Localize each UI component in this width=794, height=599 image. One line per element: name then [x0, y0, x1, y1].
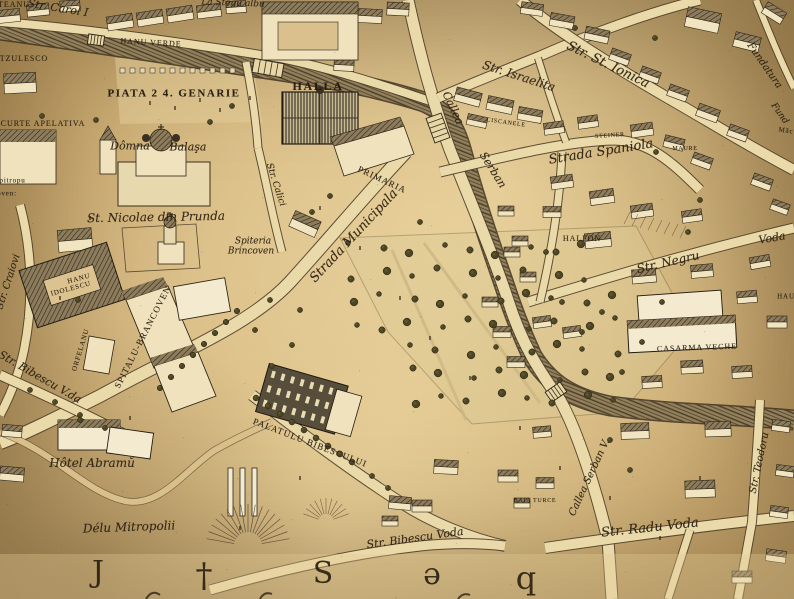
map-label-balaşa: Balaşa — [170, 142, 207, 153]
map-label-fundatura: Fundatura — [745, 41, 784, 90]
map-label-primaria: PRIMARIA — [356, 165, 408, 195]
map-label-callea-serban-v-: Callea Serban V. — [568, 438, 612, 518]
map-label-callea: Callea — [441, 90, 466, 126]
historical-map-image: TEANUStr. Carol ILa Stegu albuHANU VERDE… — [0, 0, 794, 599]
map-label-spiteria: Spiteria — [235, 238, 271, 247]
map-label-hôtel-abramŭ: Hôtel Abramŭ — [49, 457, 135, 469]
map-label-str-craiovi: Str. Craiovi — [0, 253, 23, 311]
margin-letter-3: ǝ — [423, 560, 441, 590]
map-label-curte-apelativa: CURTE APELATIVA — [1, 120, 86, 128]
map-label-str-bibescu-v-da: Str. Bibescu V.da — [0, 349, 83, 405]
map-label-spitalu-brancoven: SPITALU-BRANCOVEN — [113, 284, 173, 389]
map-label-oven-: oven: — [0, 191, 17, 198]
map-label-halfon: HALFON — [563, 235, 601, 243]
map-label-epitropu: Epitropu — [0, 178, 26, 185]
map-label-maure: MAURE — [672, 146, 697, 152]
map-label-str-teodoru: Str. Teodoru — [749, 431, 772, 494]
map-label-str-calici: Str. Calici — [264, 162, 286, 207]
map-label-tzulesco: TZULESCO — [0, 55, 48, 63]
map-label-la-stegu-albu: La Stegu albu — [201, 0, 265, 10]
map-label-fund: Fund — [769, 102, 790, 127]
map-label-brincoven: Brincoven — [228, 248, 274, 257]
map-label-hau: HAU — [777, 294, 794, 301]
map-label-ciscanele: CISCANELE — [486, 117, 526, 128]
map-label-steiner: STEINER — [595, 132, 625, 140]
map-label-serban: Serban — [478, 150, 509, 190]
map-label-halla: HALLA — [292, 80, 343, 92]
map-label-str-israelita: Str. Israelita — [481, 59, 557, 94]
map-label-voda: Voda — [758, 230, 787, 246]
map-label-str-bibescu-voda: Str. Bibescu Voda — [366, 526, 464, 550]
map-label-palatulu-bibescului: PALATULU BIBESCULUI — [252, 417, 369, 469]
map-labels-layer: TEANUStr. Carol ILa Stegu albuHANU VERDE… — [0, 0, 794, 599]
map-label-hanu-verde: HANU VERDE — [120, 37, 182, 48]
map-label-strada-spaniola: Strada Spaniola — [548, 137, 654, 166]
map-label-délu-mitropolii: Délu Mitropolii — [83, 519, 176, 534]
map-label-casarma-veche: CASARMA VECHE — [657, 343, 737, 354]
map-label-st-nicolae-din-prunda: St. Nicolae din Prunda — [87, 210, 225, 224]
margin-letter-1: † — [196, 559, 213, 593]
map-label-baia-turce: BAIA TURCE — [514, 498, 557, 504]
map-label-str-negru: Str. Negru — [636, 249, 701, 275]
map-label-dômna: Dômna — [110, 141, 150, 152]
map-label-orfelanu: ORFELANU — [71, 328, 91, 372]
map-label-strada-municipala: Strada Municipala — [308, 187, 401, 285]
map-label-piata-2-4-genarie: PIATA 2 4. GENARIE — [107, 89, 240, 100]
map-label-măc: Măc — [778, 126, 794, 135]
map-label-str-radu-voda: Str. Radu Voda — [601, 516, 700, 539]
margin-letter-4: q — [516, 562, 536, 594]
map-label-str-carol-i: Str. Carol I — [27, 0, 89, 18]
margin-letter-2: S — [313, 559, 334, 589]
map-label-teanu: TEANU — [0, 1, 30, 9]
margin-letter-0: J — [92, 558, 104, 588]
map-label-str-st-ionica: Str. St. Ionica — [565, 39, 652, 90]
